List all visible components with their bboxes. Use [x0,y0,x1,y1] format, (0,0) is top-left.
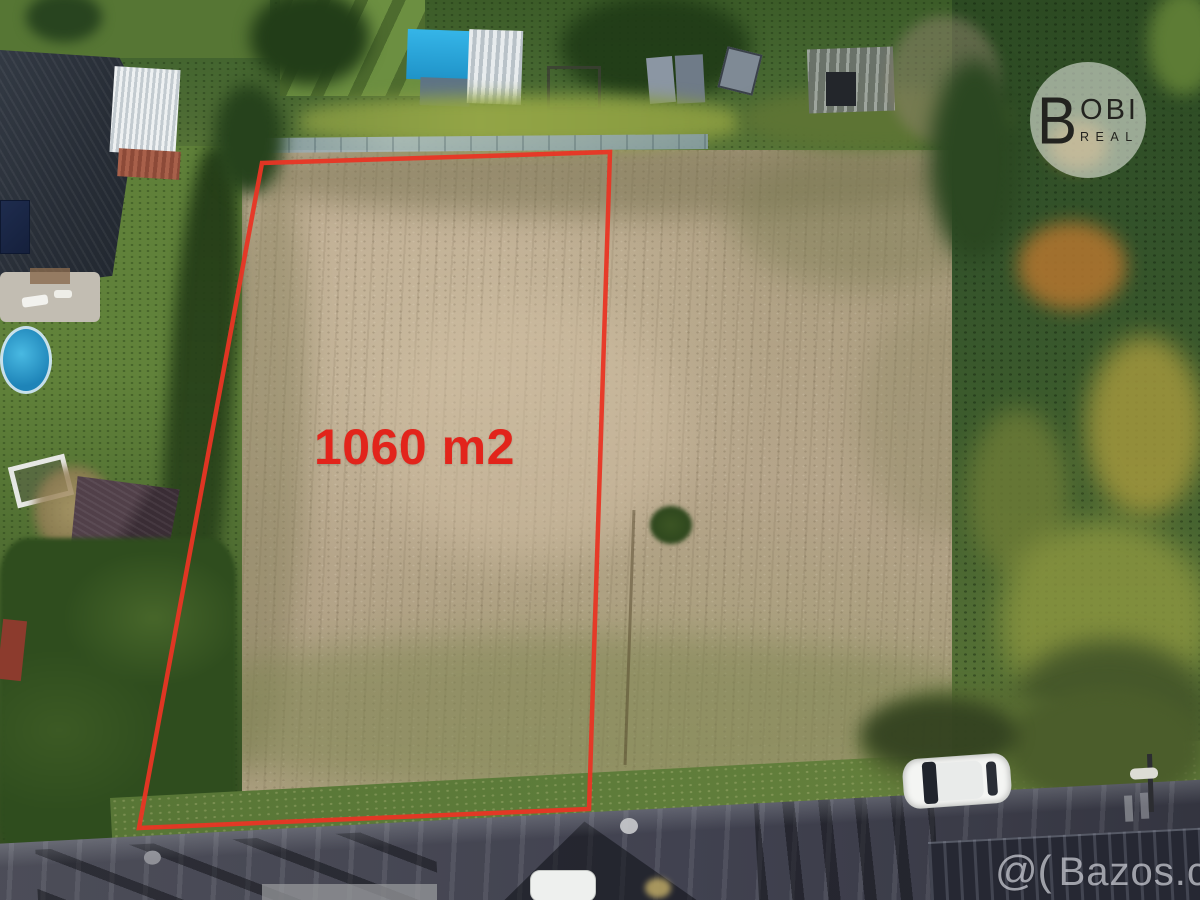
logo-right-column: OBI REAL [1080,96,1139,144]
plot-boundary [139,152,610,828]
bazos-logo-symbol: @( [995,850,1052,892]
plot-boundary-overlay [0,0,1200,900]
agency-logo: B OBI REAL [1030,62,1146,178]
logo-subtitle: REAL [1080,131,1139,144]
logo-name: OBI [1080,96,1139,125]
bazos-watermark: @( Bazos.cz [995,850,1200,892]
aerial-land-plot-photo: 1060 m2 B OBI REAL @( Bazos.cz [0,0,1200,900]
agency-logo-text: B OBI REAL [1037,95,1139,146]
area-label: 1060 m2 [314,422,515,472]
bazos-site-name: Bazos.cz [1059,852,1200,892]
logo-letter-b: B [1037,91,1077,148]
